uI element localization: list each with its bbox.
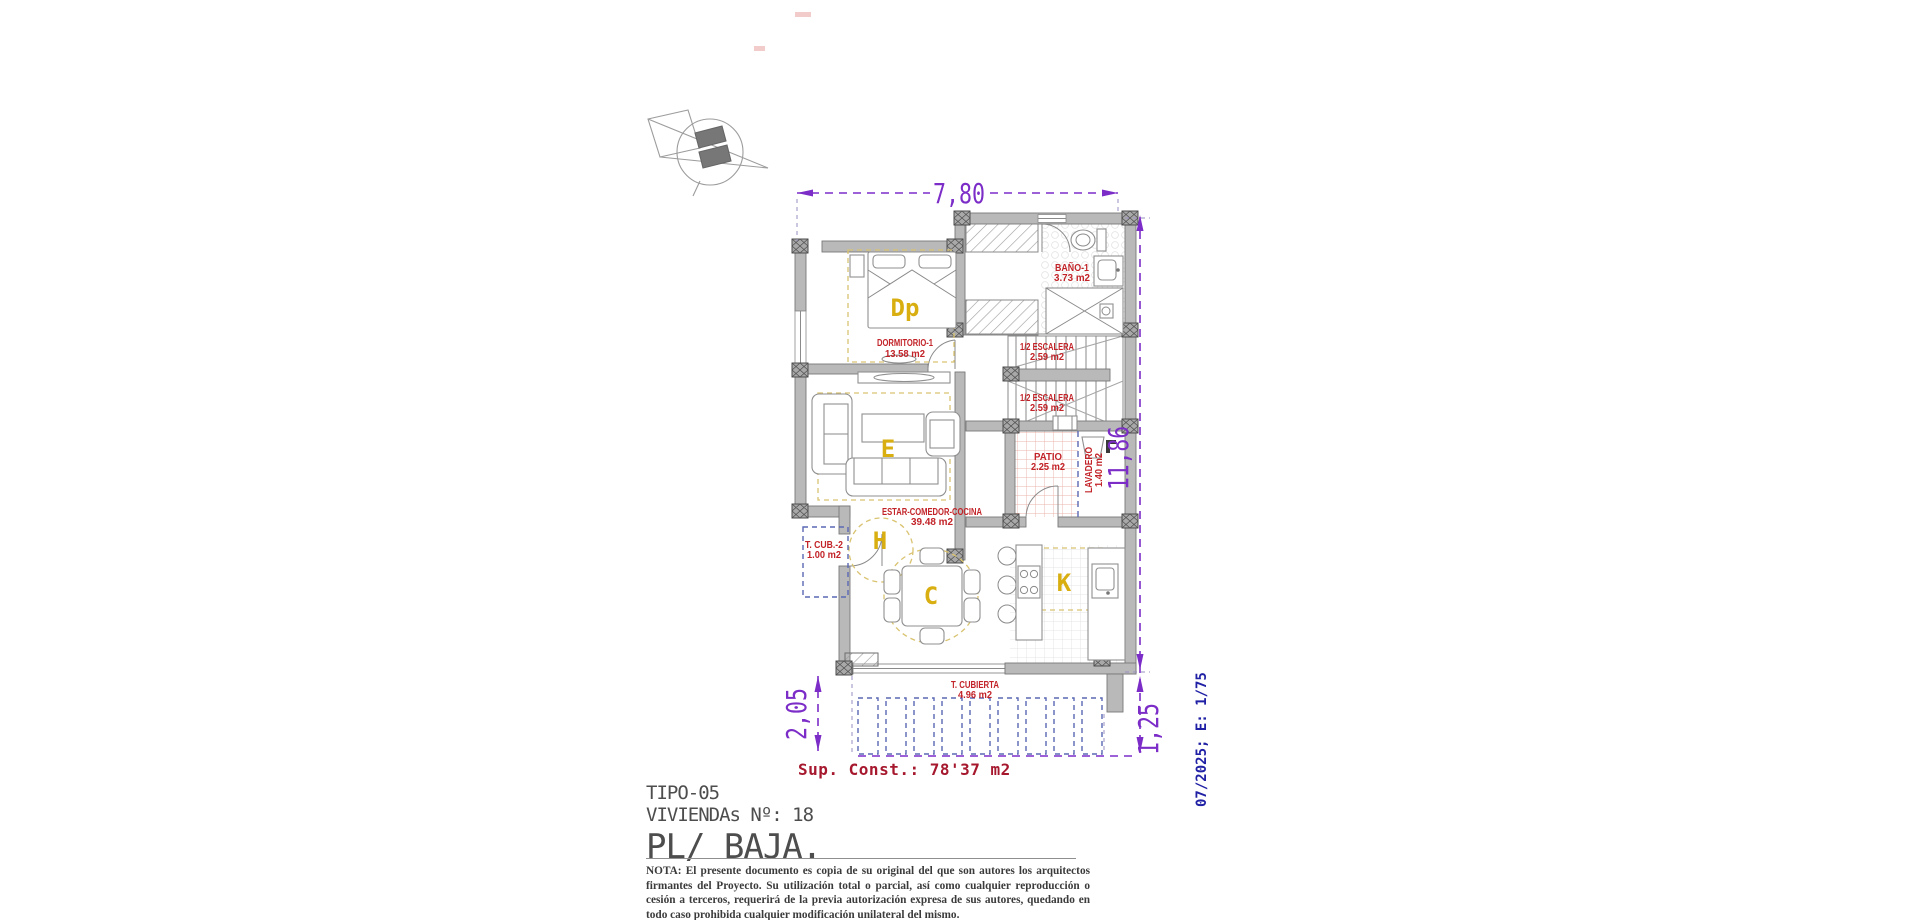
plan-level-title: PL/ BAJA.	[646, 828, 821, 866]
patio-floor-tiles	[1015, 431, 1078, 517]
legal-note: NOTA: El presente documento es copia de …	[646, 864, 1090, 920]
label-tcubierta-area: 4.96 m2	[958, 690, 992, 701]
armchair	[926, 412, 960, 456]
sofa-left	[812, 394, 852, 474]
dim-terrace-right: 1,25	[1132, 703, 1165, 755]
plan-type: TIPO-05	[646, 782, 821, 804]
washing-machine	[1053, 416, 1077, 430]
sofa-bottom	[846, 458, 946, 496]
bath-sink	[1094, 256, 1123, 286]
kitchen-island	[1016, 545, 1042, 640]
label-patio-area: 2.25 m2	[1031, 462, 1065, 473]
built-area-total: Sup. Const.: 78'37 m2	[798, 760, 1011, 779]
label-escalera-a-area: 2.59 m2	[1030, 352, 1064, 363]
zone-letter-dormitorio: Dp	[891, 294, 920, 322]
shower	[1046, 288, 1123, 334]
floor-plan-drawing: 7,80 11,86 1,25 2,05 DORMITORIO-1 13.58 …	[0, 0, 1920, 920]
label-estar-area: 39.48 m2	[911, 517, 953, 528]
dim-terrace-left: 2,05	[780, 688, 813, 740]
label-tcub2-area: 1.00 m2	[807, 550, 841, 561]
title-block: TIPO-05 VIVIENDAs Nº: 18 PL/ BAJA.	[646, 782, 821, 866]
north-arrow-icon	[648, 110, 768, 196]
plan-dwellings: VIVIENDAs Nº: 18	[646, 804, 821, 826]
dim-right-height: 11,86	[1102, 426, 1135, 490]
label-dormitorio-area: 13.58 m2	[885, 349, 925, 360]
zone-letter-estar: E	[881, 435, 895, 463]
label-escalera-b-area: 2.59 m2	[1030, 403, 1064, 414]
label-bano-area: 3.73 m2	[1054, 273, 1090, 284]
label-lavadero-area: 1.40 m2	[1094, 453, 1105, 487]
zone-letter-comedor: C	[924, 582, 938, 610]
date-scale-stamp: 07/2025; E: 1/75	[1187, 777, 1319, 807]
zone-letter-hall: H	[873, 527, 887, 555]
kitchen-counter-sink	[1088, 548, 1125, 660]
title-divider	[646, 858, 1076, 859]
pergola-slats	[858, 698, 1102, 754]
dim-top-width: 7,80	[933, 177, 985, 210]
label-dormitorio: DORMITORIO-1	[877, 338, 933, 349]
zone-letter-cocina: K	[1057, 569, 1072, 597]
toilet	[1071, 229, 1106, 251]
floor-plan-sheet: 7,80 11,86 1,25 2,05 DORMITORIO-1 13.58 …	[0, 0, 1920, 920]
